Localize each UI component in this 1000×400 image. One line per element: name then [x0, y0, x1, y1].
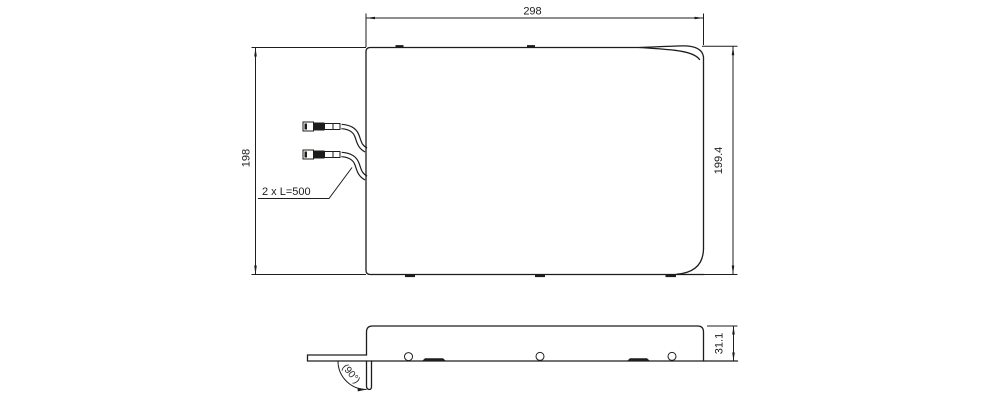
arrowhead — [732, 353, 735, 362]
arrowhead — [254, 48, 257, 57]
cable-bottom — [342, 155, 367, 179]
dimension-height-left: 198 — [241, 48, 367, 275]
edge-tab — [396, 45, 404, 48]
mounting-hole — [536, 352, 544, 360]
connector-bottom — [303, 150, 340, 159]
arrowhead — [695, 17, 704, 20]
edge-tab — [422, 358, 446, 361]
cable-note: 2 x L=500 — [258, 168, 352, 199]
bend-outer-contour — [640, 46, 704, 249]
dim-side-height-label: 31.1 — [714, 333, 726, 354]
corner-radius-line — [677, 249, 704, 274]
cable-note-label: 2 x L=500 — [262, 186, 311, 198]
edge-tab — [527, 45, 535, 48]
bend-angle-dimension: (90°) — [338, 361, 367, 391]
edge-tab — [405, 275, 415, 277]
dim-height-left-label: 198 — [241, 149, 253, 167]
dimension-height-right: 199.4 — [702, 46, 738, 274]
cable-top — [342, 127, 367, 151]
connector-top — [303, 122, 340, 131]
side-view: 31.1 (90°) — [308, 326, 738, 391]
edge-tab — [627, 358, 650, 361]
side-profile-outline — [308, 326, 738, 390]
bend-inner-line — [640, 48, 700, 60]
bend-angle-label: (90°) — [340, 362, 362, 386]
arrowhead — [732, 46, 735, 55]
arrowhead — [732, 266, 735, 275]
arrowhead — [254, 266, 257, 275]
bent-leg — [367, 361, 372, 390]
mounting-hole — [668, 352, 676, 360]
dim-width-label: 298 — [523, 6, 541, 18]
arrowhead — [366, 17, 375, 20]
plate-outline — [366, 45, 704, 277]
edge-tab — [666, 275, 677, 277]
drawing-svg: 298 198 199.4 2 x L=500 — [0, 0, 1000, 400]
edge-tab — [535, 275, 545, 277]
dimension-width: 298 — [366, 6, 704, 48]
dim-height-right-label: 199.4 — [713, 147, 725, 175]
arrowhead — [358, 388, 367, 392]
arrowhead — [732, 326, 735, 335]
top-view: 298 198 199.4 2 x L=500 — [241, 6, 738, 278]
mounting-hole — [405, 353, 413, 361]
mounting-flange — [308, 355, 367, 361]
dimension-side-height: 31.1 — [707, 326, 738, 361]
technical-drawing-page: 298 198 199.4 2 x L=500 — [0, 0, 1000, 400]
